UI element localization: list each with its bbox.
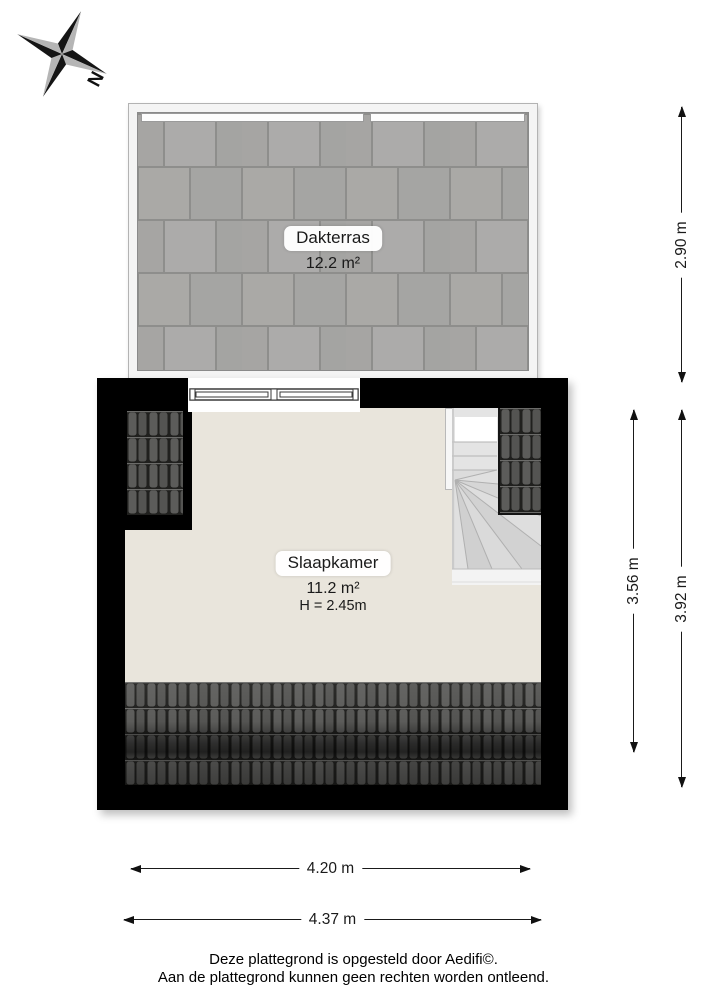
roof-section-left [127,411,183,515]
arrowhead-left-icon [123,916,134,924]
dimension-bedroom-width-inner: 4.20 m [131,868,530,869]
dimension-bedroom-depth-outer: 3.92 m [681,410,682,787]
room-height-label: H = 2.45m [276,598,391,614]
room-name-badge: Dakterras [284,226,382,251]
dimension-label: 2.90 m [673,212,691,277]
arrowhead-up-icon [630,409,638,420]
dakterras-room: Dakterras 12.2 m² [128,103,538,380]
dimension-bedroom-depth-inner: 3.56 m [633,410,634,752]
arrowhead-right-icon [531,916,542,924]
room-name-badge: Slaapkamer [276,551,391,576]
arrowhead-right-icon [520,865,531,873]
terrace-label-group: Dakterras 12.2 m² [284,226,382,273]
bedroom-label-group: Slaapkamer 11.2 m² H = 2.45m [276,551,391,614]
arrowhead-up-icon [678,409,686,420]
arrowhead-down-icon [678,372,686,383]
terrace-railing-segment [370,113,525,122]
compass-north-label: N [84,68,109,90]
footer: Deze plattegrond is opgesteld door Aedif… [0,951,707,987]
dimension-label: 4.37 m [301,911,364,929]
room-area-label: 12.2 m² [284,255,382,273]
dimension-terrace-depth: 2.90 m [681,107,682,382]
roof-section-bottom [125,682,541,785]
dimension-label: 3.92 m [673,566,691,631]
floorplan-canvas: N Dakterras [0,0,707,1000]
compass-icon: N [10,4,120,106]
room-area-label: 11.2 m² [276,580,391,598]
window-door [188,378,360,412]
roof-fold-shadow [125,682,541,785]
slaapkamer-room: Slaapkamer 11.2 m² H = 2.45m [97,378,568,810]
arrowhead-left-icon [130,865,141,873]
terrace-railing-segment [141,113,364,122]
roof-section-right [498,408,541,515]
arrowhead-down-icon [630,742,638,753]
arrowhead-up-icon [678,106,686,117]
footer-line2: Aan de plattegrond kunnen geen rechten w… [0,969,707,987]
footer-line1: Deze plattegrond is opgesteld door Aedif… [0,951,707,969]
dimension-label: 3.56 m [625,548,643,613]
dimension-label: 4.20 m [299,860,362,878]
dimension-bedroom-width-outer: 4.37 m [124,919,541,920]
arrowhead-down-icon [678,777,686,788]
